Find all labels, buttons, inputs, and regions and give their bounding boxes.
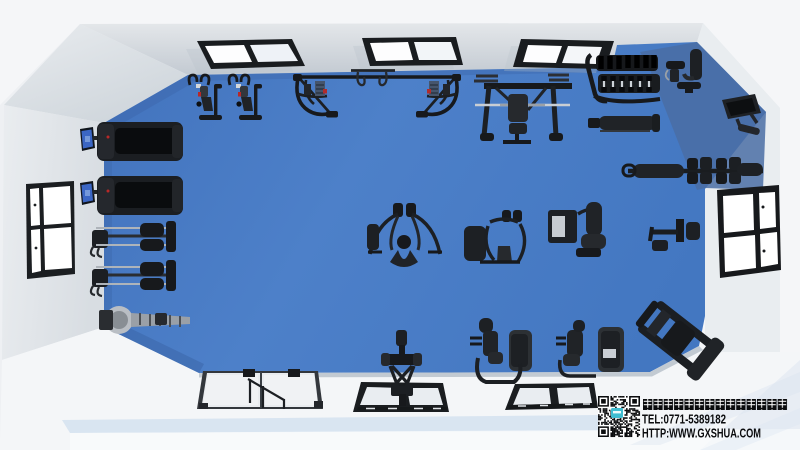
- svg-text:HTTP:WWW.GXSHUA.COM: HTTP:WWW.GXSHUA.COM: [642, 426, 761, 441]
- svg-text:TEL:0771-5389182: TEL:0771-5389182: [642, 412, 726, 427]
